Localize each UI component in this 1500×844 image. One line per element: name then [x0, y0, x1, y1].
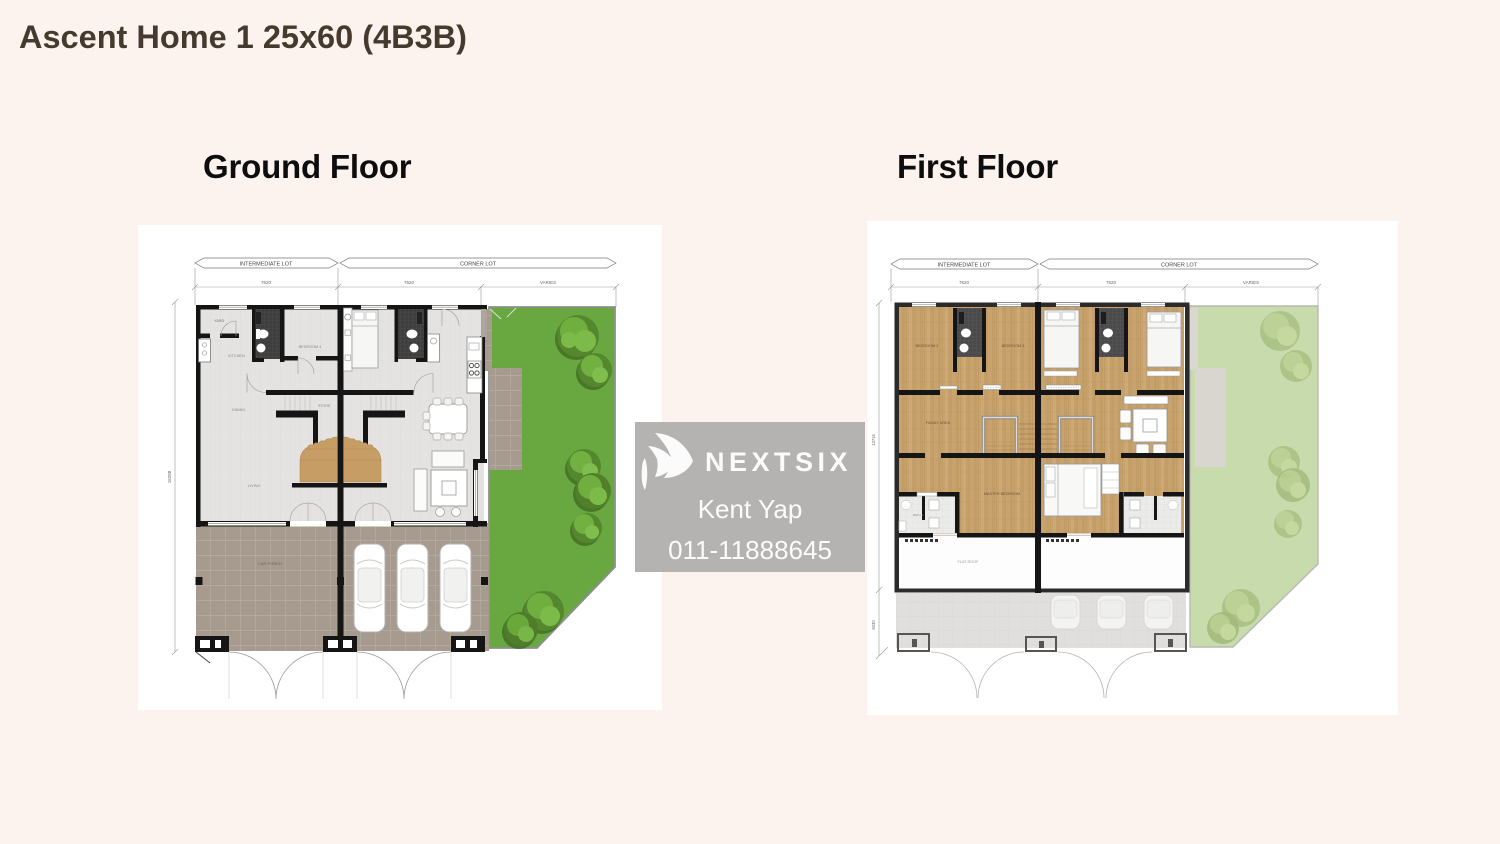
svg-text:16288: 16288	[167, 470, 172, 483]
svg-text:STORE: STORE	[318, 404, 331, 408]
svg-text:BATH 1: BATH 1	[913, 513, 924, 517]
svg-text:INTERMEDIATE LOT: INTERMEDIATE LOT	[938, 262, 991, 268]
svg-text:KITCHEN: KITCHEN	[228, 354, 245, 358]
svg-text:MASTER BEDROOM: MASTER BEDROOM	[984, 492, 1021, 496]
svg-text:5030: 5030	[871, 620, 876, 630]
svg-text:BEDROOM 2: BEDROOM 2	[916, 344, 939, 348]
svg-text:7620: 7620	[404, 280, 415, 285]
svg-text:FLAT ROOF: FLAT ROOF	[958, 560, 980, 564]
svg-text:VARIES: VARIES	[540, 280, 556, 285]
svg-text:13716: 13716	[871, 434, 876, 446]
svg-text:7620: 7620	[261, 280, 272, 285]
svg-text:CAR PORCH: CAR PORCH	[258, 561, 282, 566]
svg-text:NEXTSIX: NEXTSIX	[705, 447, 852, 477]
svg-text:DINING: DINING	[232, 408, 245, 412]
svg-text:FAMILY AREA: FAMILY AREA	[926, 421, 951, 425]
svg-text:VARIES: VARIES	[1243, 280, 1259, 285]
svg-text:BEDROOM 4: BEDROOM 4	[299, 345, 322, 349]
svg-text:7620: 7620	[1106, 280, 1117, 285]
svg-text:INTERMEDIATE LOT: INTERMEDIATE LOT	[240, 261, 293, 267]
svg-text:CORNER LOT: CORNER LOT	[460, 261, 497, 267]
svg-text:YARD: YARD	[214, 319, 225, 323]
svg-text:LIVING: LIVING	[248, 484, 260, 488]
svg-text:BEDROOM 3: BEDROOM 3	[1002, 344, 1025, 348]
svg-text:7620: 7620	[959, 280, 970, 285]
svg-text:CORNER LOT: CORNER LOT	[1161, 262, 1198, 268]
